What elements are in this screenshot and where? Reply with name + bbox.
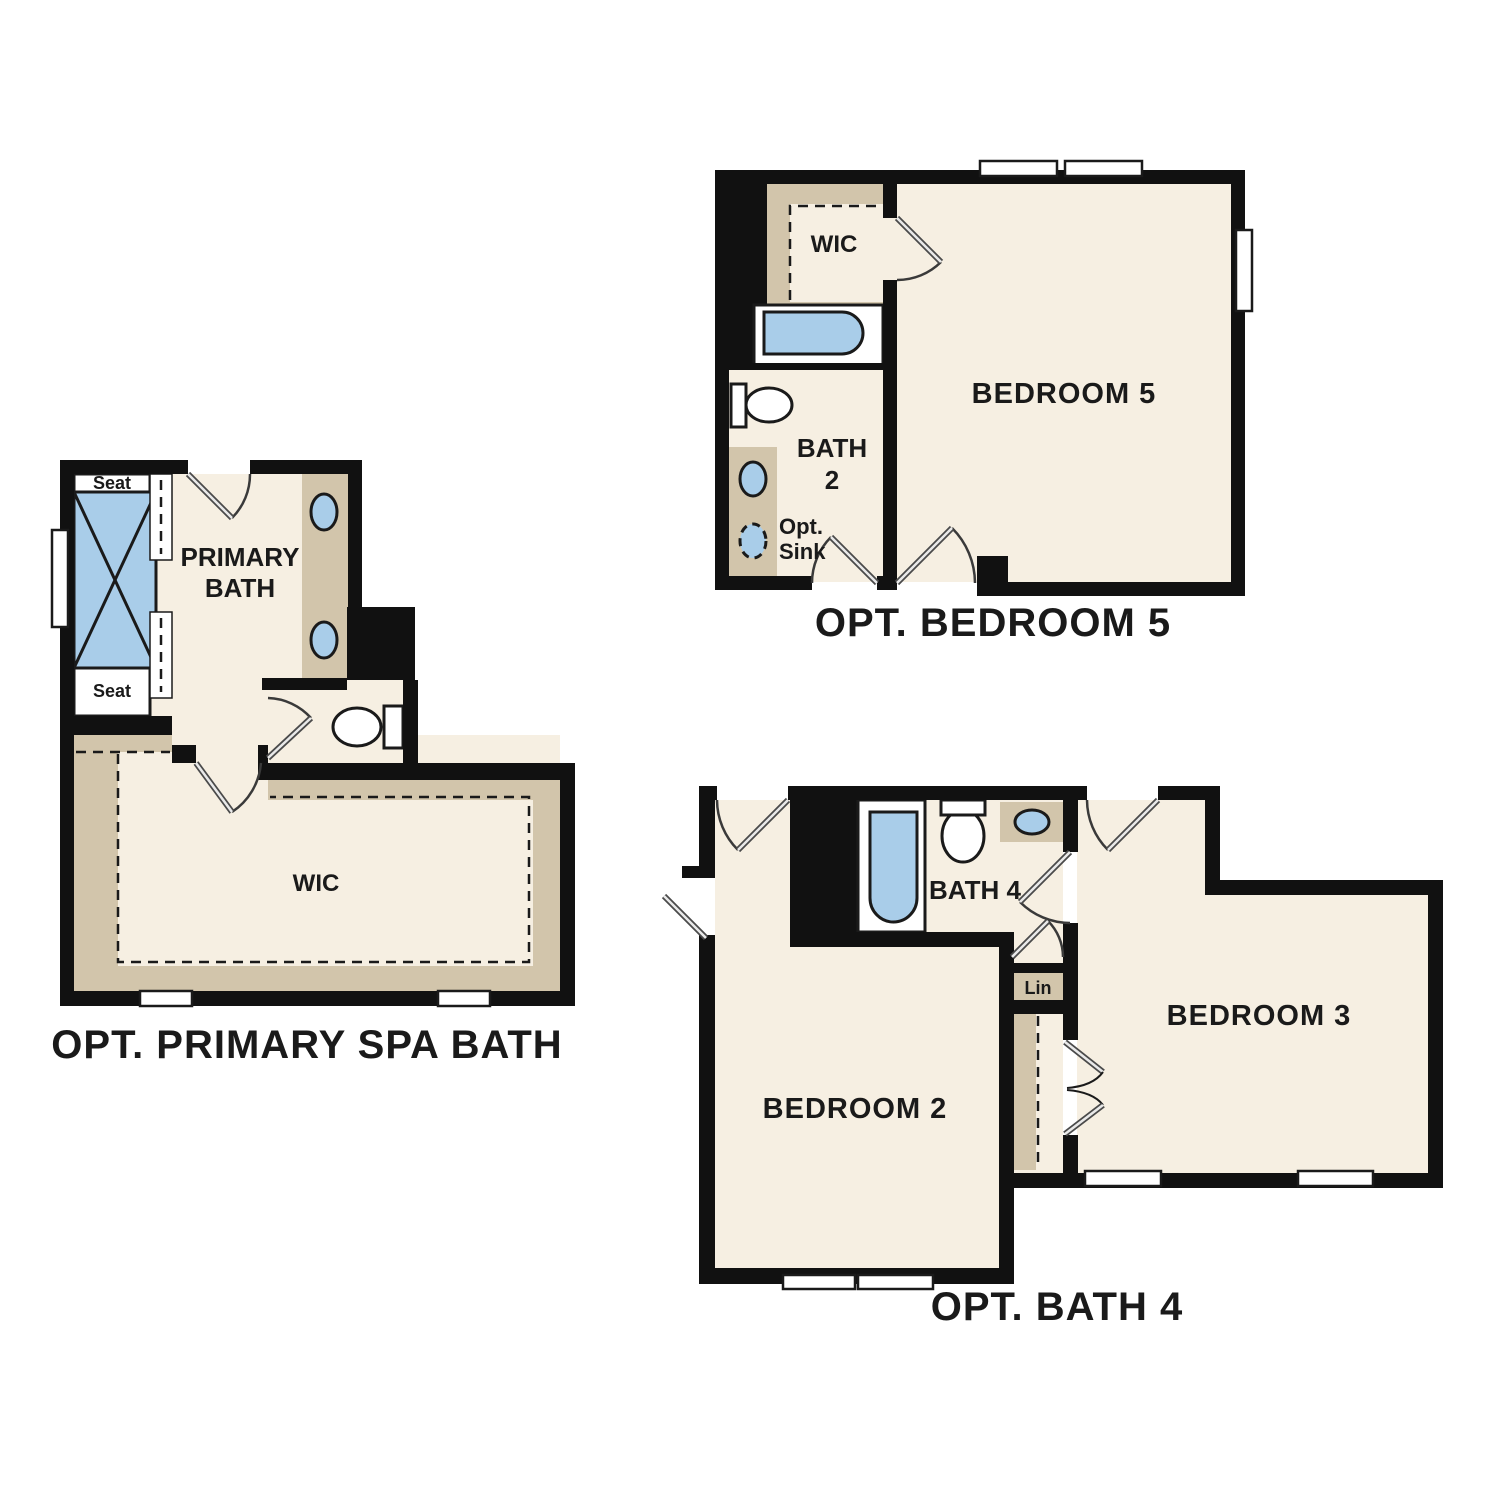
opt-sink-label-line2: Sink xyxy=(779,539,826,564)
opt-sink-label-line1: Opt. xyxy=(779,514,823,539)
toilet-icon xyxy=(333,706,403,748)
bedroom5-label: BEDROOM 5 xyxy=(972,378,1157,410)
seat-top-label: Seat xyxy=(93,473,131,493)
primary-bath-label-line2: BATH xyxy=(205,573,275,603)
sink-icon xyxy=(311,622,337,658)
seat-bottom-label: Seat xyxy=(93,681,131,701)
bathtub-icon xyxy=(870,812,917,922)
linen-label: Lin xyxy=(1025,978,1052,998)
toilet-icon xyxy=(941,800,985,862)
plan-title-primary-spa-bath: OPT. PRIMARY SPA BATH xyxy=(51,1023,562,1067)
bedroom2-label: BEDROOM 2 xyxy=(763,1093,948,1125)
bathtub-icon xyxy=(764,312,863,354)
optional-sink-icon xyxy=(740,524,766,558)
sink-icon xyxy=(740,462,766,496)
interior-wall-mass xyxy=(790,800,866,932)
bedroom2-side-door-swing xyxy=(664,896,706,938)
bath2-label-line1: BATH xyxy=(797,433,867,463)
plan-title-bath4: OPT. BATH 4 xyxy=(931,1285,1184,1329)
sink-icon xyxy=(311,494,337,530)
plan-title-bedroom5: OPT. BEDROOM 5 xyxy=(815,601,1171,645)
sink-icon xyxy=(1015,810,1049,834)
floor-plan-canvas: WIC BATH 2 Opt. Sink BEDROOM 5 OPT. BEDR… xyxy=(0,0,1500,1500)
bath4-label: BATH 4 xyxy=(929,875,1022,905)
wic-label: WIC xyxy=(811,231,858,258)
bath2-label-line2: 2 xyxy=(825,465,839,495)
wall-under-tub xyxy=(729,363,883,370)
closet-shelf-band xyxy=(1014,1014,1036,1170)
bedroom3-floor-right xyxy=(1205,895,1428,1173)
bedroom3-label: BEDROOM 3 xyxy=(1167,1000,1352,1032)
plan-opt-bath4: BATH 4 Lin BEDROOM 2 BEDROOM 3 OPT. BATH… xyxy=(664,786,1443,1329)
plan-opt-bedroom5: WIC BATH 2 Opt. Sink BEDROOM 5 OPT. BEDR… xyxy=(715,161,1252,645)
primary-bath-label-line1: PRIMARY xyxy=(181,542,300,572)
plan-opt-primary-spa-bath: Seat Seat PRIMARY BATH WIC OPT. PRIMARY … xyxy=(51,460,575,1067)
bedroom3-floor-left xyxy=(1077,800,1205,1173)
wic-label: WIC xyxy=(293,870,340,897)
floor-plan-page: WIC BATH 2 Opt. Sink BEDROOM 5 OPT. BEDR… xyxy=(0,0,1500,1500)
